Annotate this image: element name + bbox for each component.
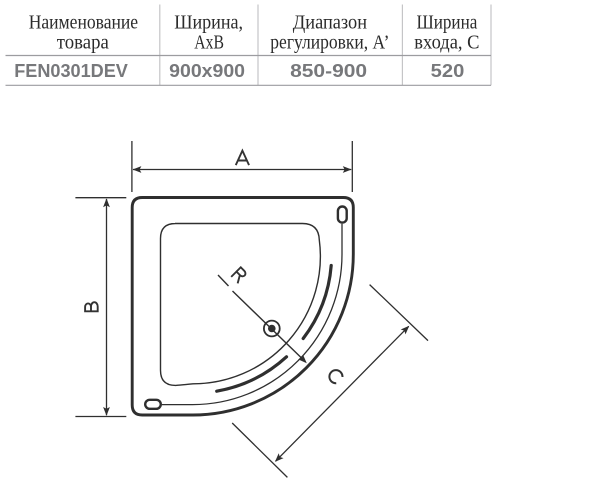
svg-text:регулировки, А’: регулировки, А’ [270,31,389,53]
svg-text:Наименование: Наименование [29,11,138,33]
svg-text:900x900: 900x900 [169,60,245,81]
svg-text:Ширина,: Ширина, [174,11,243,33]
svg-text:850-900: 850-900 [290,60,367,81]
svg-text:Диапазон: Диапазон [293,11,367,33]
svg-text:520: 520 [431,60,465,81]
svg-text:Ширина: Ширина [417,11,478,33]
svg-text:FEN0301DEV: FEN0301DEV [14,60,128,81]
svg-text:входа, С: входа, С [414,31,479,53]
svg-text:АхВ: АхВ [194,31,224,53]
svg-text:товара: товара [57,31,109,53]
